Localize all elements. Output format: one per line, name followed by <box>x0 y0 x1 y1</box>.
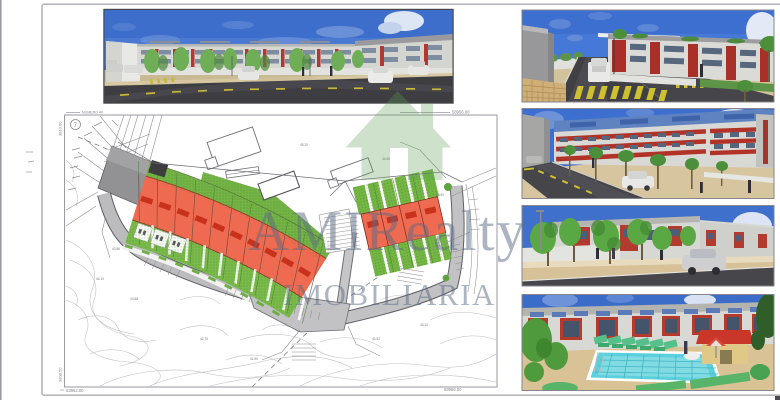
svg-text:AMIRealty: AMIRealty <box>248 200 527 263</box>
svg-text:40.10: 40.10 <box>420 323 428 327</box>
svg-text:53962.00: 53962.00 <box>66 388 84 393</box>
svg-text:45.20: 45.20 <box>300 143 308 147</box>
svg-text:58956.00: 58956.00 <box>452 110 470 115</box>
svg-text:41.90: 41.90 <box>250 357 258 361</box>
svg-text:3810.00: 3810.00 <box>58 121 63 136</box>
svg-text:43.58: 43.58 <box>130 297 138 301</box>
svg-text:43.86: 43.86 <box>112 247 120 251</box>
svg-text:NUMERO 40: NUMERO 40 <box>82 111 103 115</box>
svg-text:IMOBILIARIA: IMOBILIARIA <box>283 278 496 312</box>
svg-text:42.75: 42.75 <box>200 337 208 341</box>
svg-text:3808.50: 3808.50 <box>58 367 63 382</box>
svg-text:44.10: 44.10 <box>96 277 104 281</box>
svg-text:43.90: 43.90 <box>436 193 444 197</box>
svg-text:40.52: 40.52 <box>372 337 380 341</box>
svg-text:58956.00: 58956.00 <box>444 387 462 392</box>
